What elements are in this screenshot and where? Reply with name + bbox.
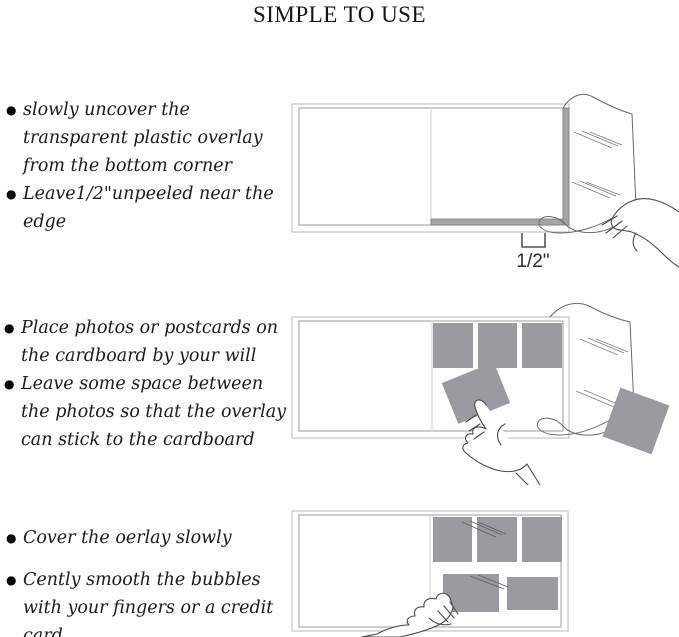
figure-step2-place-photos [280, 295, 679, 490]
album-place-illustration [280, 295, 679, 485]
reflection-lines-lower [576, 390, 620, 407]
page-title: SIMPLE TO USE [0, 2, 679, 28]
reflection-lines-upper [574, 131, 622, 148]
bullet-text: Cover the oerlay slowly [23, 524, 298, 552]
bullet-text: Leave some space between the photos so t… [21, 370, 294, 454]
adhesive-edge-bottom [431, 219, 563, 225]
measurement-bracket [522, 233, 545, 247]
bullet-icon: ● [6, 566, 23, 637]
photo-placeholder [507, 577, 558, 610]
bullet-text: slowly uncover the transparent plastic o… [23, 96, 288, 180]
adhesive-edge-right [563, 108, 569, 225]
reflection-lines-upper [580, 338, 628, 355]
measurement-label: 1/2" [516, 251, 549, 272]
bullet-text: Cently smooth the bubbles with your fing… [23, 566, 298, 637]
bullet-icon: ● [4, 370, 21, 454]
bullet-text: Place photos or postcards on the cardboa… [21, 314, 294, 370]
photo-placeholder [522, 323, 562, 368]
step-1-bullets: ● slowly uncover the transparent plastic… [6, 96, 288, 236]
hand-icon [602, 199, 679, 267]
figure-step1-peel-overlay: 1/2" [280, 90, 679, 285]
figure-step3-smooth-overlay [280, 490, 679, 637]
reflection-lines-lower [572, 181, 620, 198]
instruction-sheet: SIMPLE TO USE ● slowly uncover the trans… [0, 0, 679, 637]
bullet-text: Leave1/2"unpeeled near the edge [23, 180, 288, 236]
list-item: ● Place photos or postcards on the cardb… [4, 314, 294, 370]
list-item: ● Cently smooth the bubbles with your fi… [6, 566, 298, 637]
list-item: ● Leave some space between the photos so… [4, 370, 294, 454]
photo-placeholder [478, 323, 517, 368]
list-item: ● Cover the oerlay slowly [6, 524, 298, 552]
bullet-icon: ● [6, 524, 23, 552]
bullet-icon: ● [6, 96, 23, 180]
photo-placeholder [522, 517, 562, 562]
photo-placeholder [433, 323, 473, 368]
album-peel-illustration: 1/2" [280, 90, 679, 280]
loose-photo [603, 388, 670, 455]
step-2-bullets: ● Place photos or postcards on the cardb… [4, 314, 294, 454]
album-smooth-illustration [280, 490, 679, 637]
bullet-icon: ● [6, 180, 23, 236]
bullet-icon: ● [4, 314, 21, 370]
step-3-bullets: ● Cover the oerlay slowly ● Cently smoot… [6, 524, 298, 637]
list-item: ● Leave1/2"unpeeled near the edge [6, 180, 288, 236]
list-item: ● slowly uncover the transparent plastic… [6, 96, 288, 180]
